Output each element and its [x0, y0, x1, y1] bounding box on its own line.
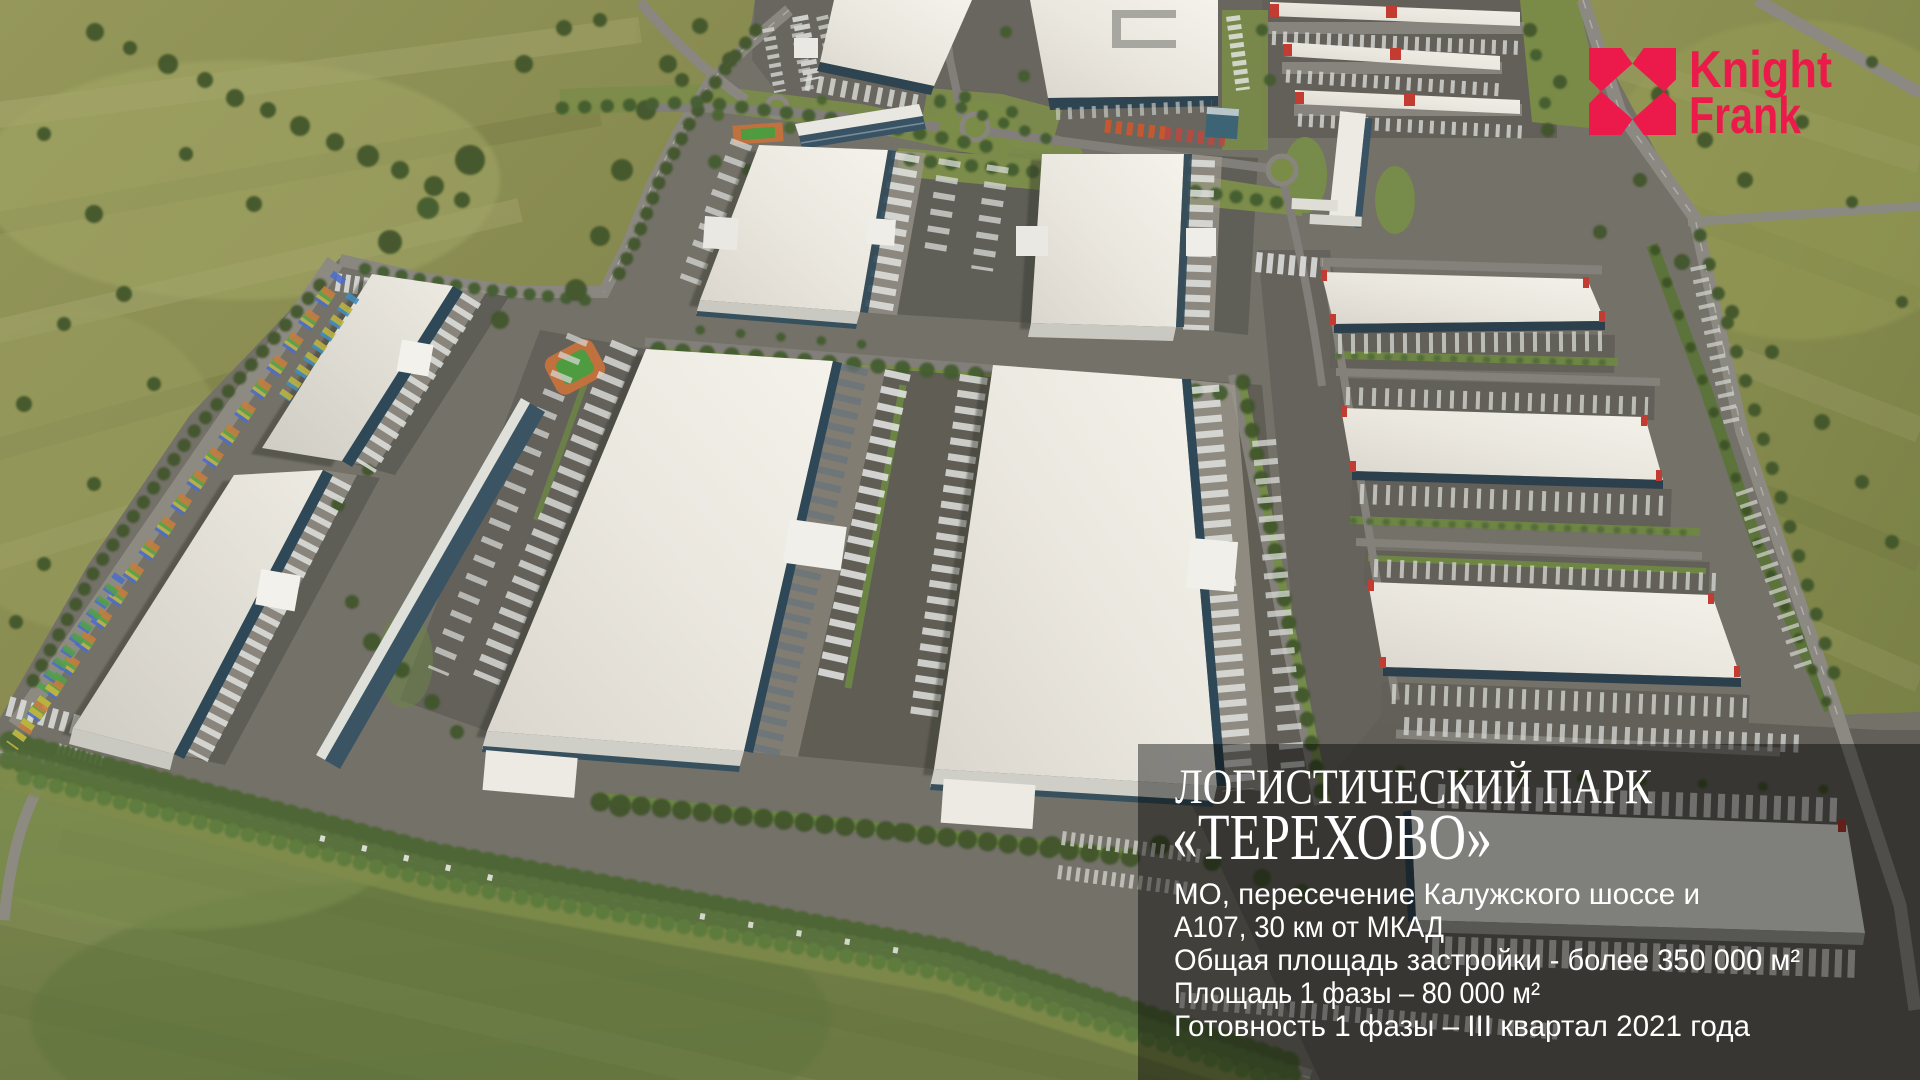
svg-text:МО, пересечение Калужского шос: МО, пересечение Калужского шоссе и [1174, 878, 1700, 911]
svg-text:А107, 30 км от МКАД: А107, 30 км от МКАД [1174, 911, 1444, 944]
svg-text:Общая площадь застройки - боле: Общая площадь застройки - более 350 000 … [1174, 944, 1800, 977]
svg-text:Площадь 1 фазы – 80 000 м²: Площадь 1 фазы – 80 000 м² [1174, 977, 1540, 1010]
svg-text:Frank: Frank [1689, 87, 1801, 145]
svg-text:«ТЕРЕХОВО»: «ТЕРЕХОВО» [1172, 801, 1492, 874]
svg-text:Готовность 1 фазы – III кварта: Готовность 1 фазы – III квартал 2021 год… [1174, 1010, 1750, 1043]
